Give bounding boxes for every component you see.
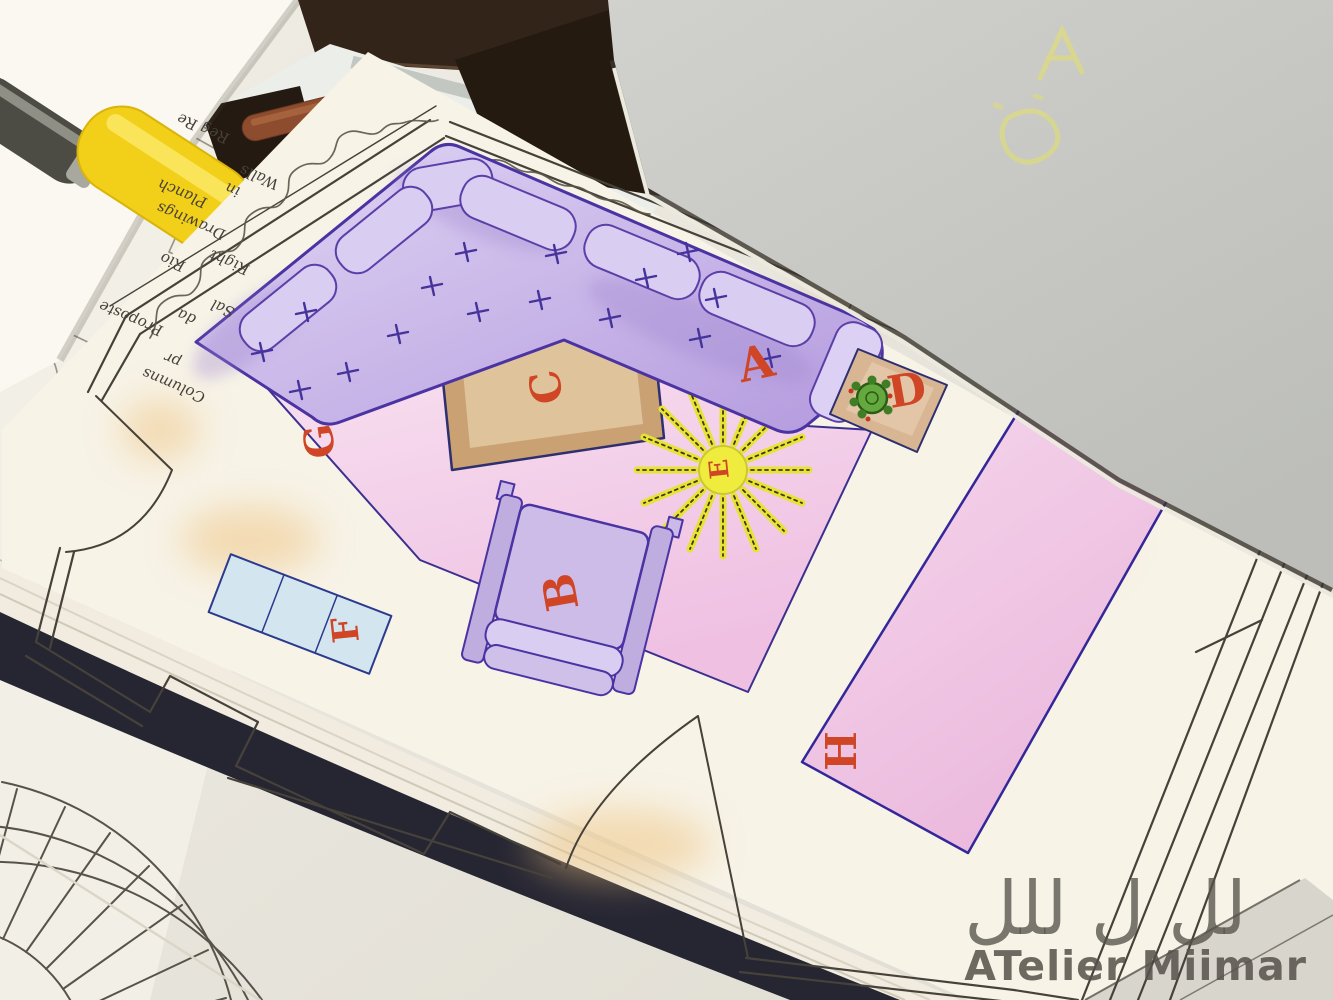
label-long-table: H [821, 731, 863, 771]
label-cabinet: F [327, 615, 365, 644]
watermark-title: ATelier Miimar [964, 942, 1307, 990]
label-rug: G [298, 421, 342, 460]
label-side-table: D [884, 366, 929, 416]
sketchbook-photo: Columns pr Proposte da Sal Rio Right Dra… [0, 0, 1333, 1000]
label-plant: E [706, 458, 734, 480]
watermark: لل ل للل ATelier Miimar [964, 874, 1307, 990]
watermark-logo-glyphs: لل ل للل [964, 874, 1307, 944]
label-armchair: B [537, 570, 587, 614]
